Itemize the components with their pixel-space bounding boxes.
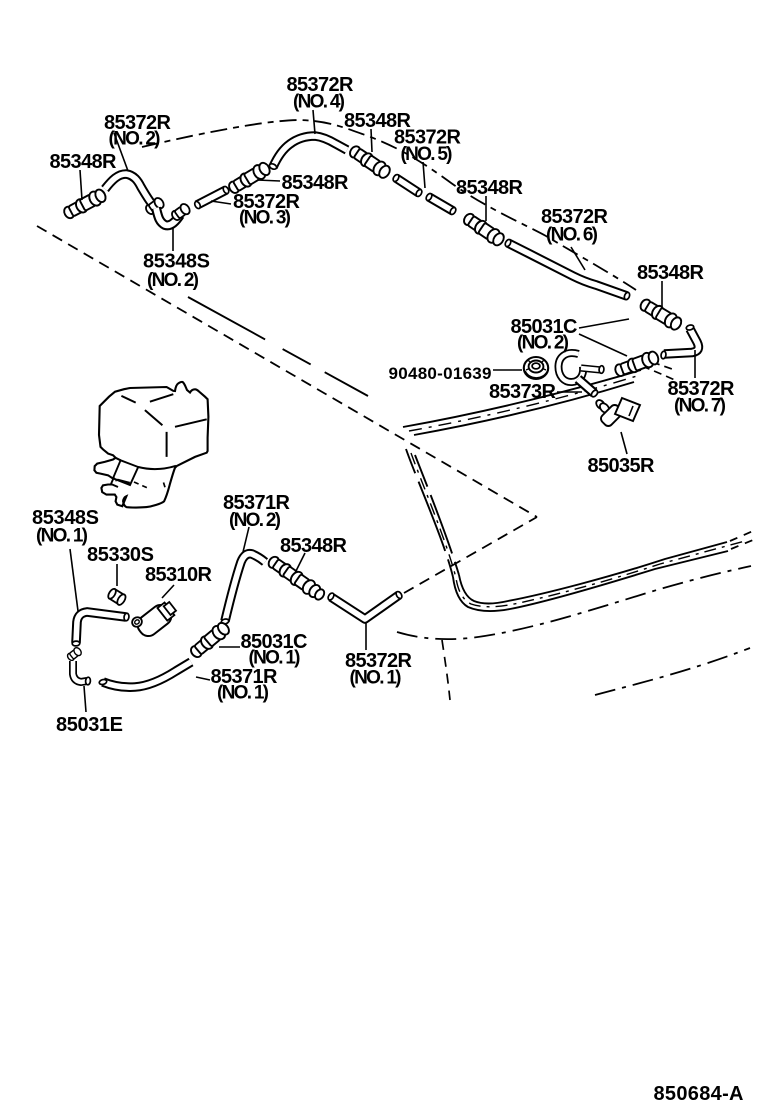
svg-text:(NO. 1): (NO. 1) bbox=[36, 526, 88, 547]
svg-text:85031E: 85031E bbox=[56, 714, 123, 736]
svg-text:(NO. 3): (NO. 3) bbox=[239, 208, 291, 229]
svg-text:85035R: 85035R bbox=[588, 455, 656, 477]
svg-text:(NO. 2): (NO. 2) bbox=[229, 510, 281, 531]
svg-text:(NO. 1): (NO. 1) bbox=[350, 668, 402, 689]
svg-text:85348R: 85348R bbox=[637, 262, 705, 284]
svg-text:85348R: 85348R bbox=[456, 177, 524, 199]
svg-text:(NO. 1): (NO. 1) bbox=[217, 683, 269, 704]
svg-text:(NO. 6): (NO. 6) bbox=[546, 225, 598, 246]
svg-text:(NO. 7): (NO. 7) bbox=[674, 396, 726, 417]
svg-text:85330S: 85330S bbox=[87, 544, 154, 566]
svg-text:(NO. 2): (NO. 2) bbox=[109, 129, 161, 150]
svg-text:(NO. 5): (NO. 5) bbox=[401, 144, 453, 165]
svg-text:850684-A: 850684-A bbox=[654, 1083, 744, 1105]
svg-text:85348R: 85348R bbox=[50, 151, 118, 173]
svg-text:(NO. 4): (NO. 4) bbox=[293, 92, 345, 113]
svg-text:(NO. 2): (NO. 2) bbox=[147, 270, 199, 291]
svg-text:90480-01639: 90480-01639 bbox=[389, 364, 492, 383]
svg-text:85373R: 85373R bbox=[489, 381, 557, 403]
svg-text:85310R: 85310R bbox=[145, 564, 213, 586]
svg-text:(NO. 2): (NO. 2) bbox=[517, 333, 569, 354]
svg-text:85348R: 85348R bbox=[280, 535, 348, 557]
